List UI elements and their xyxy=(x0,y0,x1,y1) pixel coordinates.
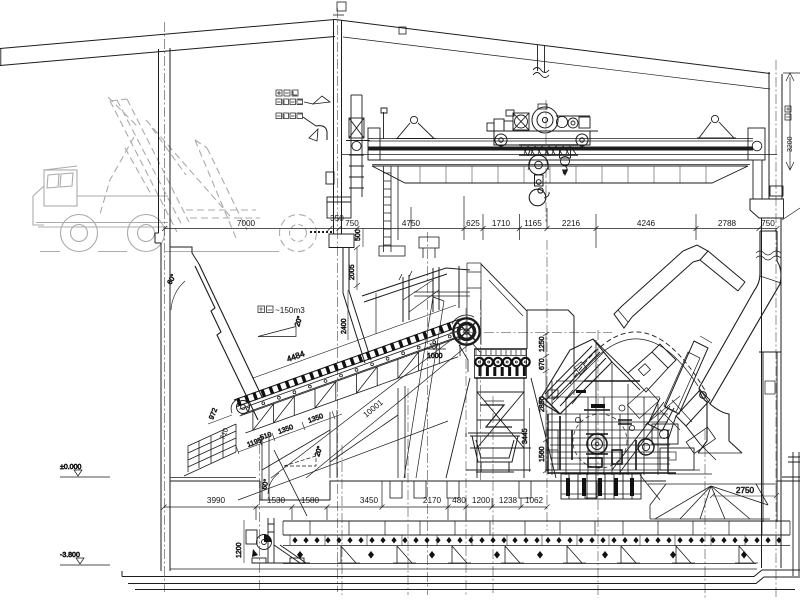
svg-text:750: 750 xyxy=(345,219,359,228)
svg-text:1250: 1250 xyxy=(539,336,546,352)
svg-text:3450: 3450 xyxy=(360,496,379,505)
svg-text:1560: 1560 xyxy=(539,446,546,462)
svg-text:2750: 2750 xyxy=(736,486,755,495)
svg-text:1000: 1000 xyxy=(427,353,443,360)
svg-text:2216: 2216 xyxy=(562,219,581,228)
svg-text:3990: 3990 xyxy=(207,496,226,505)
svg-text:2005: 2005 xyxy=(349,264,356,280)
svg-text:4750: 4750 xyxy=(402,219,421,228)
svg-text:4246: 4246 xyxy=(637,219,656,228)
svg-text:670: 670 xyxy=(539,358,546,370)
svg-text:1238: 1238 xyxy=(499,496,518,505)
svg-text:1200: 1200 xyxy=(236,542,243,558)
svg-text:3200: 3200 xyxy=(787,136,794,152)
svg-text:480: 480 xyxy=(452,496,466,505)
svg-text:625: 625 xyxy=(466,219,480,228)
svg-text:2170: 2170 xyxy=(423,496,442,505)
svg-text:500: 500 xyxy=(355,229,362,241)
svg-text:750: 750 xyxy=(761,219,775,228)
svg-text:3445: 3445 xyxy=(522,428,529,444)
svg-text:1165: 1165 xyxy=(524,219,542,228)
svg-text:2400: 2400 xyxy=(341,318,348,334)
svg-text:1530: 1530 xyxy=(267,496,286,505)
svg-text:1062: 1062 xyxy=(525,496,544,505)
svg-text:1200: 1200 xyxy=(472,496,491,505)
svg-text:~150m3: ~150m3 xyxy=(275,306,305,315)
svg-text:2788: 2788 xyxy=(718,219,737,228)
svg-text:7000: 7000 xyxy=(237,219,256,228)
svg-text:1710: 1710 xyxy=(492,219,511,228)
svg-text:1580: 1580 xyxy=(301,496,320,505)
svg-text:350: 350 xyxy=(330,214,344,223)
